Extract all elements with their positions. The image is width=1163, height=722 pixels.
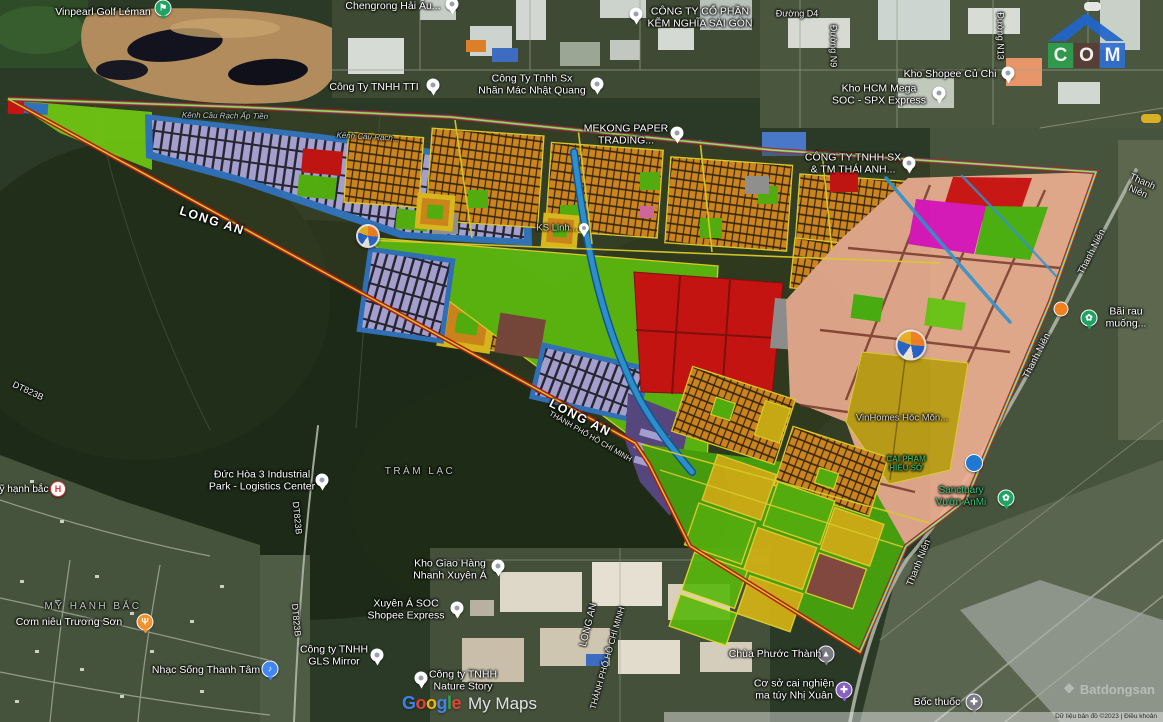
dt823b-2-label: DT823B [290,501,304,535]
vinpearl-golf-leman-label[interactable]: Vinpearl Golf Léman [55,6,151,18]
my-maps-label: My Maps [468,694,537,714]
duong-d4-label: Đường D4 [776,9,818,20]
duong-n13-label: Đường N13 [995,12,1006,59]
mekong-paper-label[interactable]: MEKONG PAPER TRADING... [584,123,668,148]
map-canvas[interactable]: ⚑HΨ♪▲✚✚✿✿ Vinpearl Golf LémanChengrong H… [0,0,1163,722]
cai-nghien-nhi-xuan-label[interactable]: Cơ sở cai nghiện ma túy Nhị Xuân [754,678,834,703]
batdongsan-diamond-icon: ❖ [1063,681,1075,697]
road-badge-white [1084,2,1101,11]
google-logo-letter: e [452,693,462,713]
kho-hcm-mega-label[interactable]: Kho HCM Mega SOC - SPX Express [832,83,926,108]
brand-logo-letter-O: O [1074,43,1099,68]
google-logo-letter: o [416,693,427,713]
bai-rau-muong-label[interactable]: Bãi rau muống... [1106,306,1147,331]
cong-ty-tti-label[interactable]: Công Ty TNHH TTI [329,81,418,93]
brand-logo-letter-M: M [1100,43,1125,68]
chua-phuoc-thanh-label[interactable]: Chùa Phước Thành [729,648,822,660]
xuyen-a-soc-label[interactable]: Xuyên Á SOC Shopee Express [367,598,444,623]
gls-mirror-label[interactable]: Công ty TNHH GLS Mirror [300,644,368,669]
brand-logo-roof-icon [1042,10,1132,42]
google-logo-letter: g [437,693,448,713]
kho-giao-hang-nhanh-label[interactable]: Kho Giao Hàng Nhanh Xuyên Á [413,558,487,583]
long-an-3-label: LONG AN [578,602,600,648]
dt823b-3-label: DT823B [289,603,303,637]
thanh-nien-2-label: Thanh Niên [1076,228,1108,277]
chengrong-hai-au-label[interactable]: Chengrong Hải Âu... [345,0,440,12]
thanh-nien-1-label: Thanh Niên [1123,171,1157,202]
tp-hcm-1-label: THÀNH PHỐ HỒ CHÍ MINH [547,410,633,465]
thanh-nien-3-label: Thanh Niên [1021,332,1053,381]
kem-nghia-sai-gon-label[interactable]: CÔNG TY CỔ PHẦN KẼM NGHĨA SÀI GÒN [647,6,752,31]
duc-hoa-3-label[interactable]: Đức Hòa 3 Industrial Park - Logistics Ce… [209,469,315,494]
batdongsan-watermark: ❖ Batdongsan [1063,681,1155,697]
long-an-2-label: LONG AN [547,396,614,440]
road-badge-yellow [1141,114,1161,123]
google-logo: Google [402,693,461,714]
kenh-cau-rach-2-label: Kênh Cầu Rạch... [336,131,400,144]
google-logo-letter: G [402,693,416,713]
sanctuary-vuon-anmi-label[interactable]: Sanctuary Vườn AnMi [936,485,987,509]
duong-n9-label: Đường N9 [828,25,839,67]
google-my-maps-watermark: Google My Maps [402,693,537,714]
thanh-nien-4-label: Thanh Niên [905,538,934,588]
my-hanh-bac-poi-label[interactable]: ỹ hạnh bắc [0,484,48,496]
map-labels-layer: Vinpearl Golf LémanChengrong Hải Âu...CÔ… [0,0,1163,722]
my-hanh-bac-area-label: MỸ HẠNH BẮC [45,601,142,613]
nature-story-label[interactable]: Công ty TNHH Nature Story [429,669,497,694]
thai-anh-label[interactable]: CÔNG TY TNHH SX & TM THÁI ANH... [805,152,901,177]
boc-thuoc-label[interactable]: Bốc thuốc [914,696,961,708]
vinhomes-hoc-mon-label: VinHomes Hóc Môn... [856,412,948,423]
brand-logo-letters: COM [1048,43,1125,68]
brand-logo-letter-C: C [1048,43,1073,68]
nhac-song-thanh-tam-label[interactable]: Nhạc Sống Thanh Tâm [152,664,260,676]
dt823b-1-label: DT823B [11,379,45,403]
kho-shopee-cu-chi-label[interactable]: Kho Shopee Củ Chi [904,68,997,80]
long-an-1-label: LONG AN [178,204,247,239]
google-logo-letter: o [426,693,437,713]
map-attribution: Dữ liệu bản đồ ©2023 | Điều khoản [664,712,1163,722]
batdongsan-text: Batdongsan [1080,682,1155,697]
kenh-cau-rach-ap-tien-label: Kênh Cầu Rạch Ấp Tiền [182,111,268,122]
tram-lac-label: TRÀM LẠC [385,466,456,478]
cai-pham-hieu-so-label: CAI PHAM HIẾU SỞ [886,455,926,474]
tp-hcm-2-label: THÀNH PHỐ HỒ CHÍ MINH [588,606,627,711]
com-nieu-truong-son-label[interactable]: Cơm niêu Trương Sơn [16,616,122,628]
brand-logo: COM [1042,10,1132,70]
ks-linh-label: KS Linh... [536,222,577,233]
nhan-mac-nhat-quang-label[interactable]: Công Ty Tnhh Sx Nhãn Mác Nhật Quang [478,73,585,98]
